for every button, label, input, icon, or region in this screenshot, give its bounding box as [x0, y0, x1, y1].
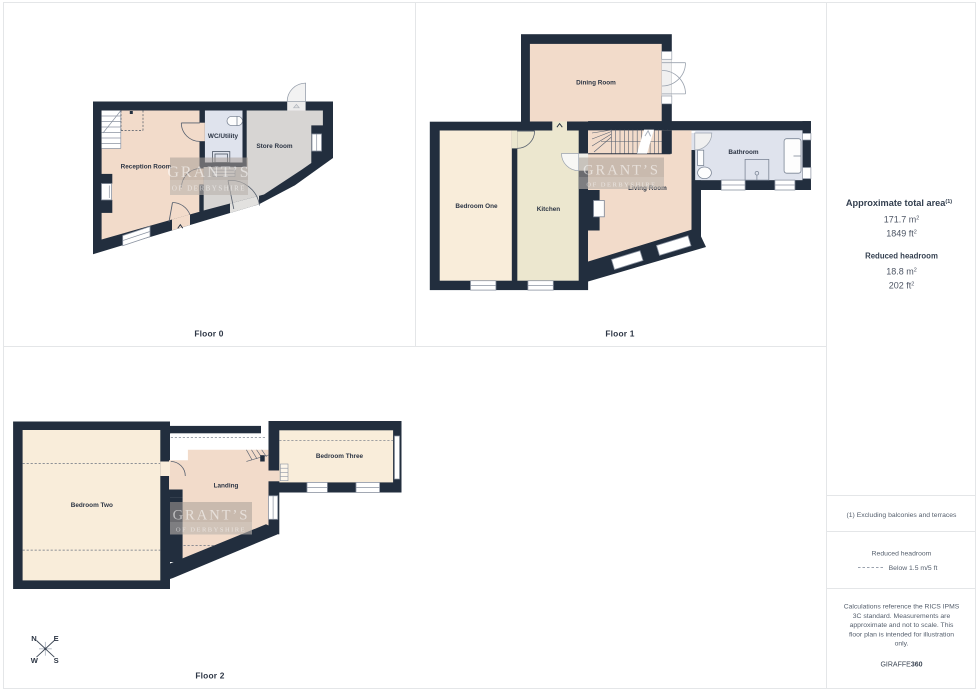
- svg-text:Reception Room: Reception Room: [121, 164, 172, 171]
- svg-text:only.: only.: [895, 641, 909, 648]
- svg-text:GRANT’S: GRANT’S: [173, 508, 250, 524]
- svg-text:E: E: [54, 634, 59, 643]
- svg-text:Floor 0: Floor 0: [194, 329, 223, 339]
- svg-text:Bedroom Two: Bedroom Two: [71, 502, 113, 509]
- svg-text:W: W: [31, 656, 39, 665]
- svg-text:Below 1.5 m/5 ft: Below 1.5 m/5 ft: [889, 565, 938, 572]
- svg-text:Reduced headroom: Reduced headroom: [872, 551, 932, 558]
- svg-text:N: N: [31, 634, 36, 643]
- svg-text:Reduced headroom: Reduced headroom: [865, 252, 938, 261]
- svg-text:Floor 1: Floor 1: [605, 329, 634, 339]
- svg-text:Dining Room: Dining Room: [576, 80, 616, 87]
- svg-text:GRANT’S: GRANT’S: [583, 163, 660, 179]
- svg-text:171.7 m2: 171.7 m2: [884, 215, 920, 225]
- svg-text:1849 ft2: 1849 ft2: [886, 229, 917, 239]
- svg-text:Calculations reference the RIC: Calculations reference the RICS IPMS: [844, 604, 960, 611]
- svg-text:18.8 m2: 18.8 m2: [886, 267, 917, 277]
- svg-text:OF DERBYSHIRE: OF DERBYSHIRE: [176, 527, 246, 534]
- svg-text:Approximate total area(1): Approximate total area(1): [846, 198, 952, 208]
- svg-text:OF DERBYSHIRE: OF DERBYSHIRE: [586, 182, 656, 189]
- svg-text:OF DERBYSHIRE: OF DERBYSHIRE: [172, 185, 246, 193]
- svg-text:GIRAFFE360: GIRAFFE360: [880, 662, 922, 669]
- svg-text:GRANT’S: GRANT’S: [167, 164, 250, 181]
- svg-text:floor plan is intended for ill: floor plan is intended for illustration: [849, 631, 954, 638]
- svg-text:Store Room: Store Room: [256, 143, 293, 150]
- svg-text:Bedroom One: Bedroom One: [455, 203, 498, 210]
- svg-text:Bathroom: Bathroom: [728, 149, 758, 156]
- svg-text:3C standard. Measurements are: 3C standard. Measurements are: [853, 613, 951, 620]
- svg-text:Kitchen: Kitchen: [537, 206, 561, 213]
- svg-text:Bedroom Three: Bedroom Three: [316, 453, 364, 460]
- svg-text:(1) Excluding balconies and te: (1) Excluding balconies and terraces: [847, 512, 958, 519]
- svg-text:WC/Utility: WC/Utility: [208, 133, 239, 140]
- svg-text:approximate and not to scale.: approximate and not to scale. This: [850, 622, 954, 629]
- svg-text:202 ft2: 202 ft2: [889, 281, 915, 291]
- svg-text:S: S: [54, 656, 59, 665]
- svg-text:Landing: Landing: [214, 482, 239, 489]
- svg-text:Floor 2: Floor 2: [195, 671, 224, 681]
